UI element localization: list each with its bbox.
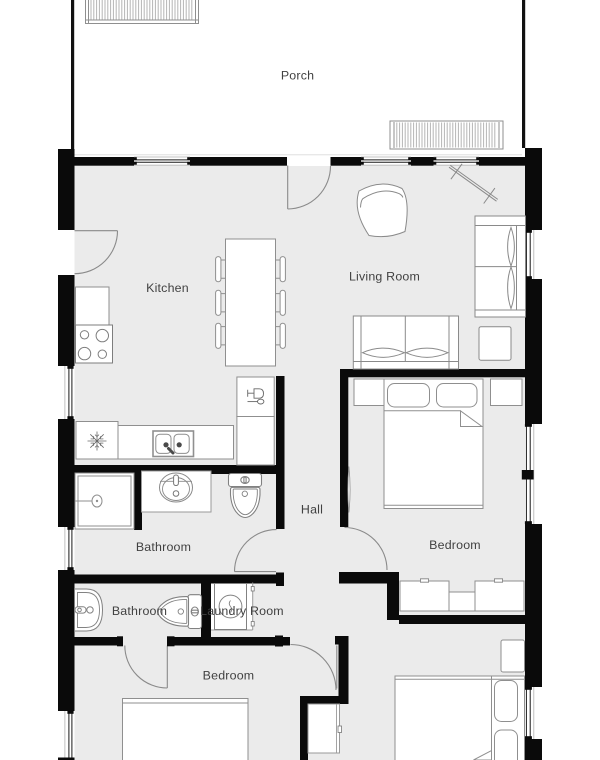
svg-text:Kitchen: Kitchen: [146, 281, 189, 295]
svg-text:Hall: Hall: [301, 503, 323, 517]
svg-text:Bathroom: Bathroom: [112, 604, 167, 618]
svg-text:Porch: Porch: [281, 69, 314, 83]
svg-text:Bedroom: Bedroom: [203, 669, 255, 683]
svg-text:Laundry Room: Laundry Room: [200, 604, 284, 618]
svg-text:Living Room: Living Room: [349, 270, 420, 284]
svg-text:Bathroom: Bathroom: [136, 540, 191, 554]
svg-text:Bedroom: Bedroom: [429, 538, 481, 552]
